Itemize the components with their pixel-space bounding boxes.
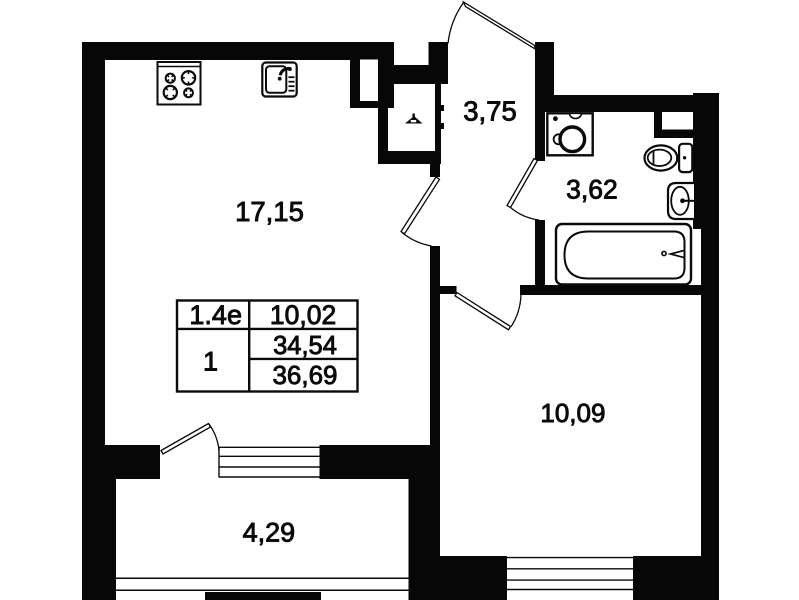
- svg-text:1.4е: 1.4е: [189, 300, 242, 330]
- svg-text:34,54: 34,54: [273, 332, 337, 360]
- svg-text:36,69: 36,69: [272, 360, 337, 390]
- svg-text:3,62: 3,62: [566, 175, 618, 205]
- svg-text:4,29: 4,29: [243, 518, 296, 548]
- svg-text:10,02: 10,02: [270, 300, 336, 330]
- svg-text:3,75: 3,75: [463, 96, 517, 127]
- svg-text:1: 1: [203, 347, 218, 377]
- svg-text:17,15: 17,15: [235, 196, 304, 227]
- svg-text:10,09: 10,09: [540, 398, 605, 428]
